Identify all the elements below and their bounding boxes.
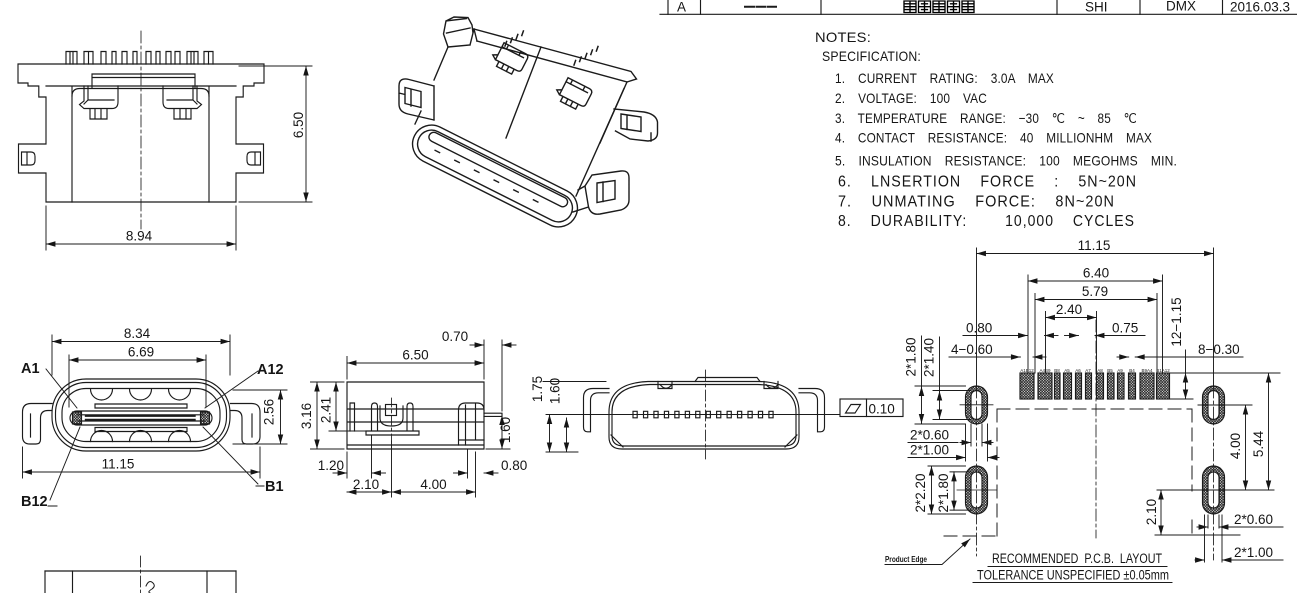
svg-text:7. UNMATING FORCE: 8N~20N: 7. UNMATING FORCE: 8N~20N xyxy=(838,194,1115,211)
svg-text:2*0.60: 2*0.60 xyxy=(1234,512,1273,527)
svg-text:B9A4: B9A4 xyxy=(1141,368,1153,373)
svg-text:2.56: 2.56 xyxy=(262,399,277,425)
svg-text:2*0.60: 2*0.60 xyxy=(910,428,949,443)
svg-text:1.20: 1.20 xyxy=(318,458,344,473)
svg-text:0.80: 0.80 xyxy=(501,458,527,473)
svg-text:5.79: 5.79 xyxy=(1082,284,1108,299)
svg-text:DMX: DMX xyxy=(1166,0,1196,14)
svg-text:1.60: 1.60 xyxy=(498,417,513,443)
svg-text:A5: A5 xyxy=(1064,368,1070,373)
svg-text:5. INSULATION RESISTANCE: 1: 5. INSULATION RESISTANCE: 100 MEGOHMS MI… xyxy=(835,153,1177,169)
svg-text:0.80: 0.80 xyxy=(966,321,992,336)
svg-text:2*2.20: 2*2.20 xyxy=(913,473,928,512)
svg-text:A1: A1 xyxy=(21,361,40,377)
svg-text:2. VOLTAGE: 100 VAC: 2. VOLTAGE: 100 VAC xyxy=(835,90,987,106)
svg-text:8.34: 8.34 xyxy=(124,326,151,341)
svg-text:3.16: 3.16 xyxy=(299,403,314,429)
svg-text:2*1.00: 2*1.00 xyxy=(910,443,949,458)
svg-text:0.70: 0.70 xyxy=(442,329,468,344)
svg-text:B4: B4 xyxy=(1129,368,1135,373)
svg-text:A8: A8 xyxy=(1097,368,1103,373)
svg-text:2.41: 2.41 xyxy=(319,397,334,423)
svg-text:RECOMMENDED P.C.B. LAYOUT: RECOMMENDED P.C.B. LAYOUT xyxy=(992,551,1162,566)
svg-text:4.00: 4.00 xyxy=(1228,433,1243,459)
svg-text:2.10: 2.10 xyxy=(353,477,379,492)
svg-text:2.10: 2.10 xyxy=(1144,499,1159,525)
svg-text:SHI: SHI xyxy=(1085,0,1108,15)
svg-text:8. DURABILITY: 10,000 CYC: 8. DURABILITY: 10,000 CYCLES xyxy=(838,213,1135,230)
svg-text:B12: B12 xyxy=(21,494,48,510)
svg-text:11.15: 11.15 xyxy=(102,457,135,472)
svg-text:B8: B8 xyxy=(1054,368,1060,373)
svg-text:4−0.60: 4−0.60 xyxy=(951,342,993,357)
svg-text:A7: A7 xyxy=(1085,368,1091,373)
svg-text:2*1.00: 2*1.00 xyxy=(1234,545,1273,560)
svg-text:A6: A6 xyxy=(1075,368,1081,373)
svg-text:6.50: 6.50 xyxy=(402,348,428,363)
svg-text:A1B12: A1B12 xyxy=(1020,368,1034,373)
svg-text:1.60: 1.60 xyxy=(548,378,563,404)
svg-text:A9: A9 xyxy=(1117,368,1123,373)
svg-text:B5: B5 xyxy=(1107,368,1113,373)
svg-text:4.00: 4.00 xyxy=(420,477,446,492)
svg-text:Product Edge: Product Edge xyxy=(885,555,927,564)
svg-text:11.15: 11.15 xyxy=(1078,238,1111,253)
svg-text:8.94: 8.94 xyxy=(126,229,153,244)
svg-text:3. TEMPERATURE RANGE: −30: 3. TEMPERATURE RANGE: −30 ℃ ~ 85 ℃ xyxy=(835,110,1137,126)
svg-text:2*1.80: 2*1.80 xyxy=(936,473,951,512)
svg-text:2*1.80: 2*1.80 xyxy=(904,337,919,376)
svg-text:B1: B1 xyxy=(265,479,284,495)
svg-text:TOLERANCE UNSPECIFIED ±0.05mm: TOLERANCE UNSPECIFIED ±0.05mm xyxy=(977,568,1169,583)
svg-text:NOTES:: NOTES: xyxy=(815,29,871,45)
svg-text:A: A xyxy=(677,0,686,15)
svg-text:6.50: 6.50 xyxy=(291,112,306,138)
svg-text:12−1.15: 12−1.15 xyxy=(1169,297,1184,346)
svg-text:2*1.40: 2*1.40 xyxy=(922,338,937,377)
svg-text:SPECIFICATION:: SPECIFICATION: xyxy=(822,48,921,64)
svg-text:2016.03.3: 2016.03.3 xyxy=(1230,0,1290,15)
svg-text:5.44: 5.44 xyxy=(1251,430,1266,457)
svg-text:8−0.30: 8−0.30 xyxy=(1198,342,1240,357)
svg-text:0.75: 0.75 xyxy=(1112,321,1138,336)
svg-text:6.69: 6.69 xyxy=(128,345,154,360)
svg-text:6.40: 6.40 xyxy=(1083,266,1109,281)
svg-text:6. LNSERTION FORCE : 5N~20: 6. LNSERTION FORCE : 5N~20N xyxy=(838,174,1137,191)
svg-text:4. CONTACT RESISTANCE: 40: 4. CONTACT RESISTANCE: 40 MILLIONHM MAX xyxy=(835,130,1152,146)
svg-text:1.75: 1.75 xyxy=(530,376,545,402)
svg-text:2.40: 2.40 xyxy=(1056,302,1082,317)
svg-text:A12: A12 xyxy=(257,362,284,378)
svg-text:0.10: 0.10 xyxy=(869,402,895,417)
svg-text:1. CURRENT RATING: 3.0A MA: 1. CURRENT RATING: 3.0A MAX xyxy=(835,70,1054,86)
svg-text:B1A12: B1A12 xyxy=(1156,368,1170,373)
